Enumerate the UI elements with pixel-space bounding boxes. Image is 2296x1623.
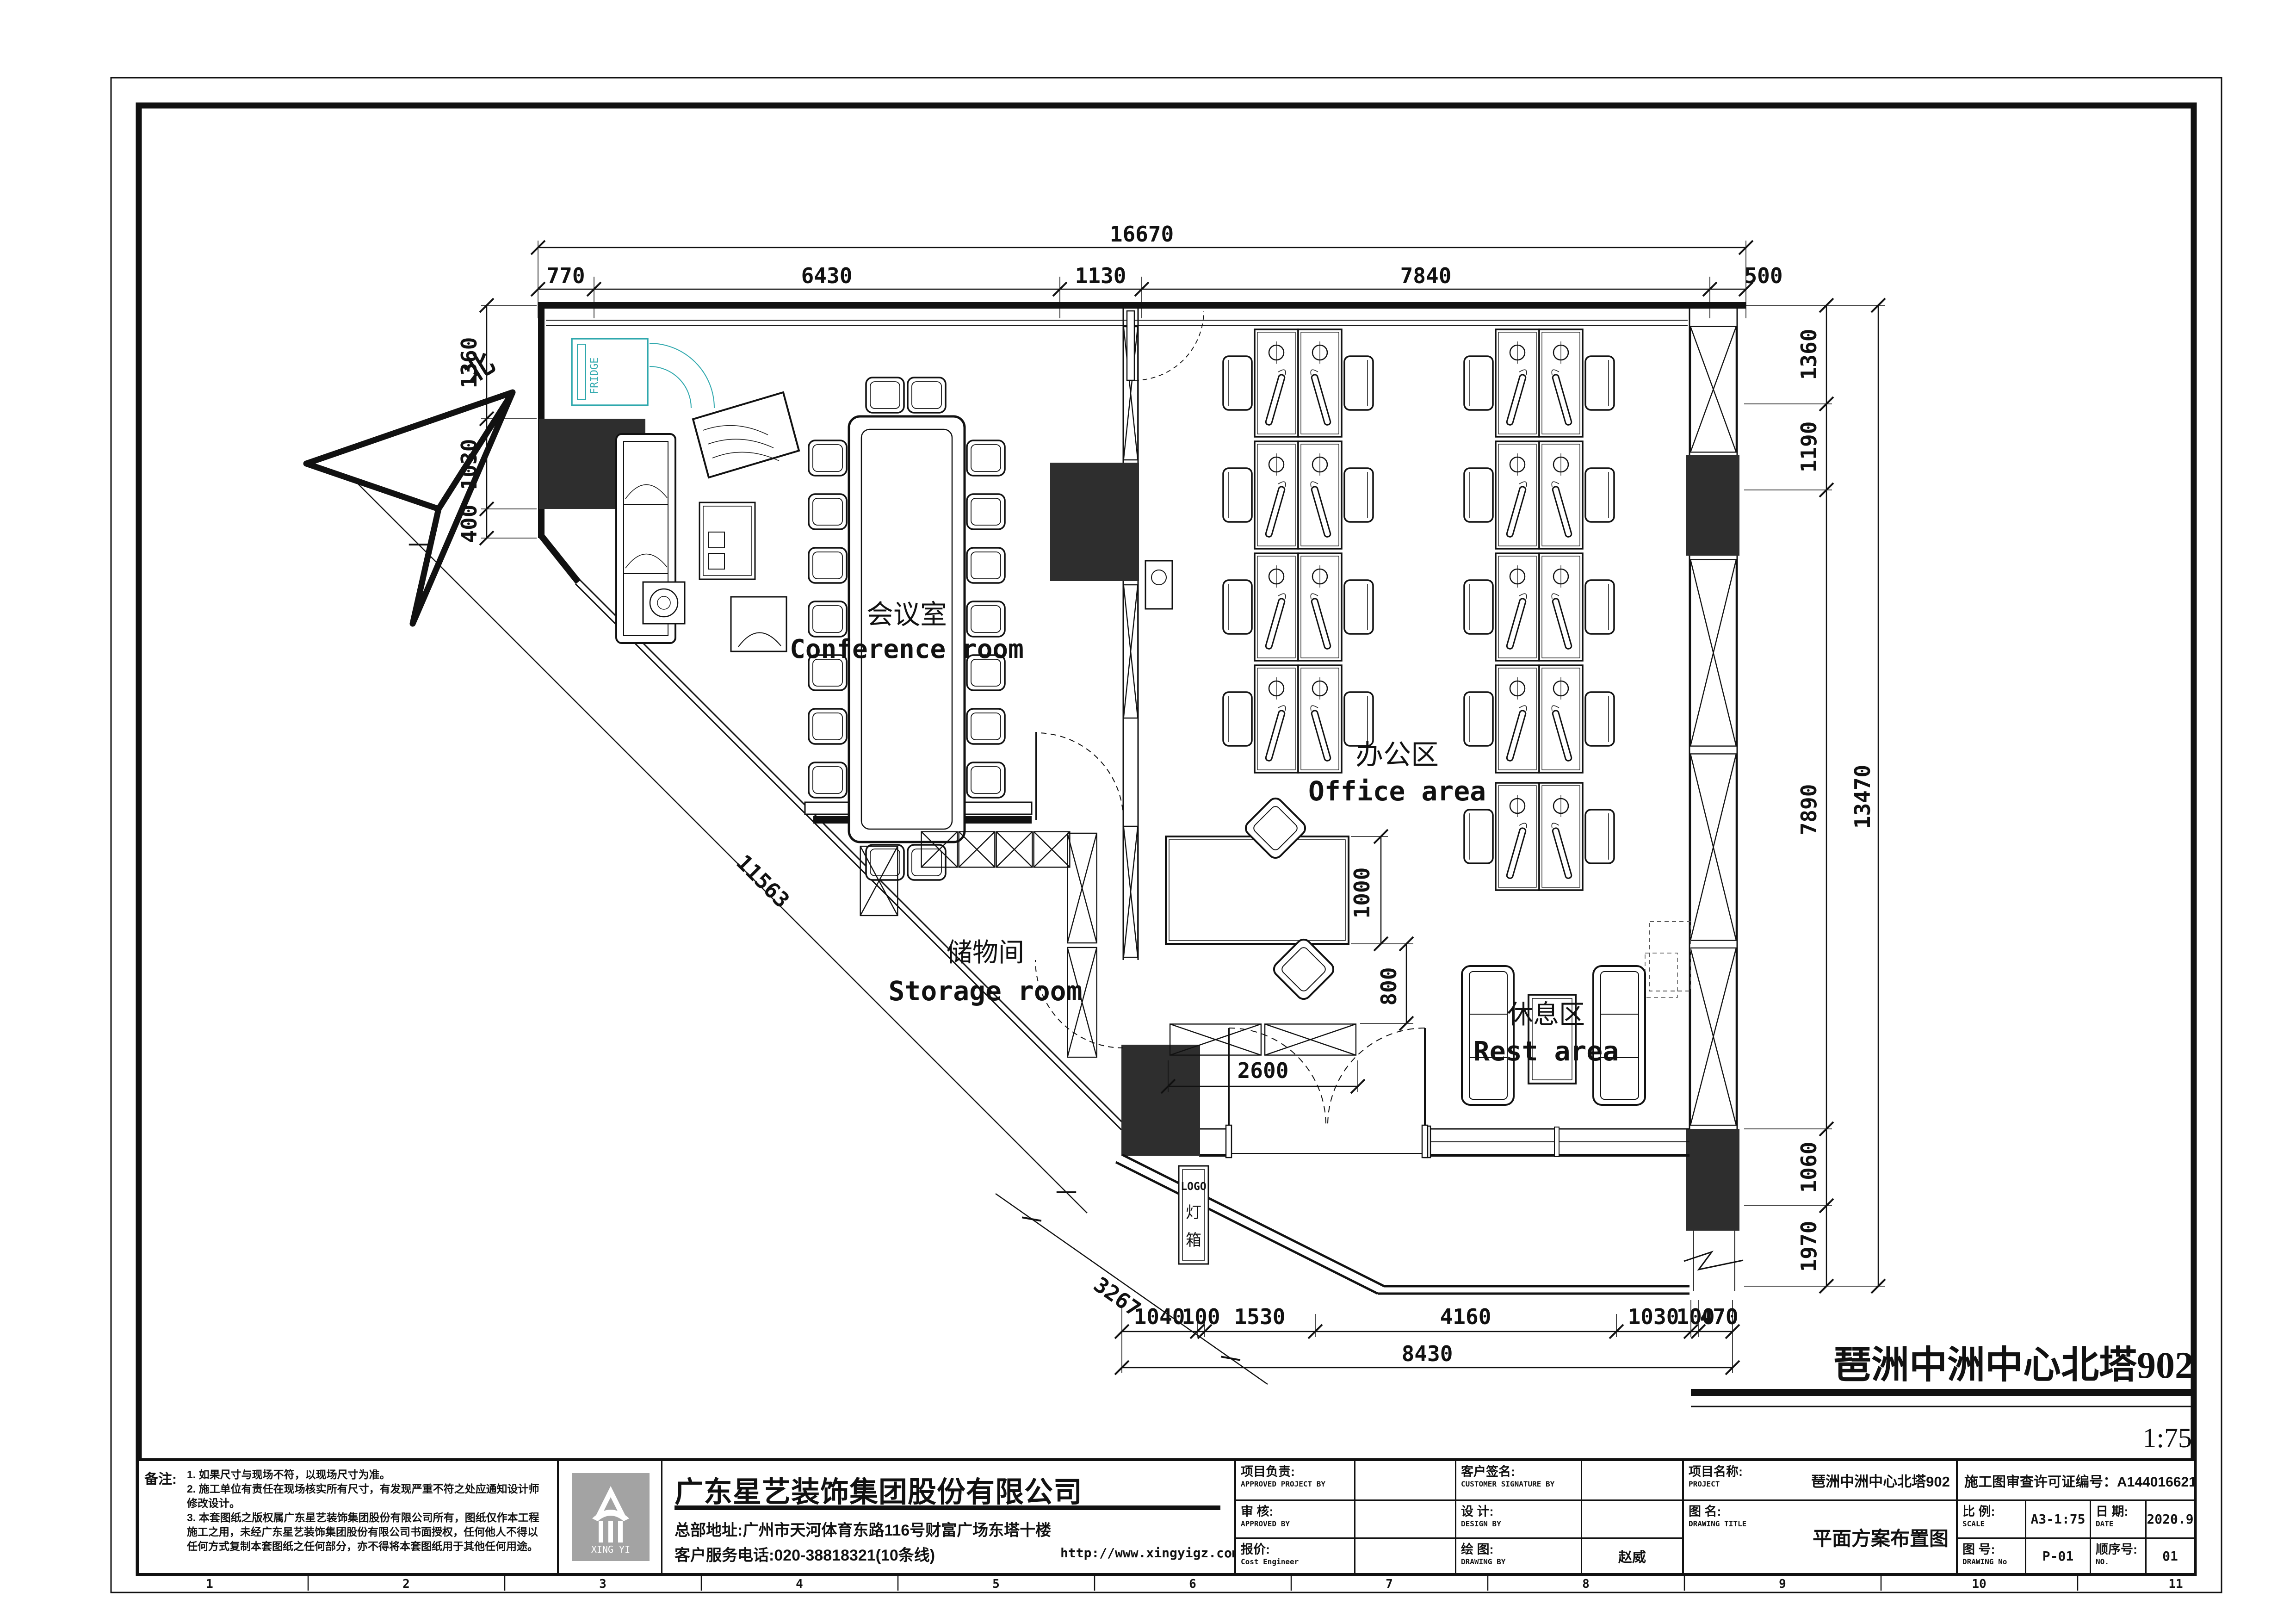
svg-text:800: 800 [1376, 967, 1401, 1005]
drawing-sheet: 12 34 56 78 910 11 北 [0, 0, 2296, 1623]
svg-text:1030: 1030 [457, 439, 482, 490]
company-address: 总部地址:广州市天河体育东路116号财富广场东塔十楼 [675, 1518, 1051, 1540]
svg-text:2: 2 [402, 1577, 410, 1591]
svg-text:1000: 1000 [1349, 867, 1374, 919]
field-customer-sign: 客户签名:CUSTOMER SIGNATURE BY [1456, 1461, 1582, 1501]
svg-text:1360: 1360 [1796, 329, 1821, 380]
svg-text:8: 8 [1582, 1577, 1590, 1591]
svg-text:1190: 1190 [1796, 421, 1821, 473]
svg-text:11: 11 [2168, 1577, 2183, 1591]
note-line: 1. 如果尺寸与现场不符，以现场尺寸为准。 [187, 1468, 553, 1482]
sheet-scale-text: 1:75 [2142, 1423, 2192, 1453]
note-line: 施工之用，未经广东星艺装饰集团股份有限公司书面授权，任何他人不得以 [187, 1525, 553, 1539]
column [1686, 1129, 1739, 1231]
svg-text:4: 4 [796, 1577, 803, 1591]
room-label: Storage room [888, 975, 1082, 1007]
field-cost: 报价:Cost Engineer [1236, 1539, 1355, 1573]
logo-cell: XING YI [559, 1461, 662, 1573]
field-seq-no: 顺序号:NO. [2091, 1539, 2147, 1573]
logo-lightbox: LOGO 灯 箱 [1179, 1166, 1208, 1264]
field-customer-sign-value [1582, 1461, 1684, 1501]
room-label: 会议室 [866, 600, 947, 630]
field-drawing-title-value: 平面方案布置图 [1805, 1501, 1958, 1573]
svg-text:100: 100 [1182, 1304, 1220, 1329]
svg-text:1530: 1530 [1234, 1304, 1286, 1329]
svg-text:7: 7 [1386, 1577, 1393, 1591]
water-dispenser [1145, 561, 1172, 609]
notes-cell: 备注: 1. 如果尺寸与现场不符，以现场尺寸为准。 2. 施工单位有责任在现场核… [139, 1461, 559, 1573]
field-project: 项目名称:PROJECT [1684, 1461, 1805, 1501]
field-approved-project-value [1355, 1461, 1456, 1501]
svg-text:770: 770 [546, 263, 585, 288]
floor-plan-canvas: 12 34 56 78 910 11 北 [0, 0, 2296, 1623]
room-label: 储物间 [947, 938, 1024, 967]
room-label: Rest area [1473, 1035, 1619, 1067]
dimension-texts: 16670 770 6430 1130 7840 500 1360 1030 4… [457, 222, 1875, 1366]
company-cell: 广东星艺装饰集团股份有限公司 总部地址:广州市天河体育东路116号财富广场东塔十… [662, 1461, 1236, 1573]
door-swing [1036, 733, 1123, 820]
svg-text:7890: 7890 [1796, 784, 1821, 836]
sheet-title-text: 琶洲中洲中心北塔902 [1833, 1344, 2194, 1386]
field-approved-project: 项目负责:APPROVED PROJECT BY [1236, 1461, 1355, 1501]
room-label: 办公区 [1355, 739, 1439, 770]
plant-table [643, 582, 685, 624]
field-date-value: 2020.9 [2147, 1501, 2194, 1539]
svg-text:灯: 灯 [1186, 1204, 1201, 1221]
svg-text:9: 9 [1779, 1577, 1786, 1591]
svg-text:1: 1 [206, 1577, 213, 1591]
reception-desk [1166, 836, 1349, 944]
svg-text:8430: 8430 [1402, 1341, 1453, 1366]
room-label: 休息区 [1507, 1000, 1585, 1029]
field-design-by-value [1582, 1501, 1684, 1539]
company-website: http://www.xingyigz.com.cn [1060, 1545, 1236, 1561]
printer-dashed [1645, 922, 1690, 997]
column [1050, 463, 1139, 581]
fridge-label: FRIDGE [589, 358, 600, 394]
side-table [699, 502, 755, 579]
sheet-title: 琶洲中洲中心北塔902 1:75 [1691, 1344, 2195, 1453]
logo-text: XING YI [591, 1544, 630, 1555]
company-phone: 客户服务电话:020-38818321(10条线) [675, 1542, 935, 1565]
column [1121, 1045, 1200, 1156]
svg-text:LOGO: LOGO [1181, 1181, 1206, 1193]
svg-text:10: 10 [1972, 1577, 1986, 1591]
north-arrow-icon: 北 [306, 347, 513, 624]
dimensions [356, 241, 1885, 1384]
svg-text:470: 470 [1700, 1304, 1738, 1329]
title-block: 备注: 1. 如果尺寸与现场不符，以现场尺寸为准。 2. 施工单位有责任在现场核… [139, 1458, 2194, 1573]
svg-text:1060: 1060 [1796, 1142, 1821, 1193]
notes-label: 备注: [144, 1468, 177, 1488]
armchair [731, 597, 786, 651]
field-scale: 比 例:SCALE [1958, 1501, 2026, 1539]
room-label: Office area [1308, 775, 1486, 807]
svg-text:5: 5 [992, 1577, 1000, 1591]
note-line: 3. 本套图纸之版权属广东星艺装饰集团股份有限公司所有，图纸仅作本工程 [187, 1511, 553, 1525]
field-seq-no-value: 01 [2147, 1539, 2194, 1573]
svg-text:6430: 6430 [801, 263, 853, 288]
field-design-by: 设 计:DESIGN BY [1456, 1501, 1582, 1539]
margin-ruler-numbers: 12 34 56 78 910 11 [206, 1577, 2183, 1591]
svg-text:1030: 1030 [1628, 1304, 1679, 1329]
field-drawing-no-value: P-01 [2026, 1539, 2091, 1573]
svg-text:16670: 16670 [1110, 222, 1174, 247]
reception [1166, 795, 1356, 1055]
company-logo: XING YI [572, 1473, 650, 1561]
rest-area: 休息区 Rest area [1462, 966, 1645, 1105]
svg-text:6: 6 [1189, 1577, 1196, 1591]
field-drawing-by-value: 赵威 [1582, 1539, 1684, 1573]
field-approved-by-value [1355, 1501, 1456, 1539]
svg-text:11563: 11563 [731, 850, 794, 913]
field-drawing-by: 绘 图:DRAWING BY [1456, 1539, 1582, 1573]
svg-text:箱: 箱 [1186, 1232, 1201, 1249]
svg-text:3: 3 [599, 1577, 606, 1591]
field-date: 日 期:DATE [2091, 1501, 2147, 1539]
company-name: 广东星艺装饰集团股份有限公司 [675, 1468, 1224, 1510]
field-drawing-title: 图 名:DRAWING TITLE [1684, 1501, 1805, 1573]
field-project-value: 琶洲中洲中心北塔902 [1805, 1461, 1958, 1501]
field-permit: 施工图审查许可证编号：A144016621(甲级) [1958, 1461, 2194, 1501]
room-label: Conference room [790, 634, 1024, 664]
svg-text:500: 500 [1744, 263, 1782, 288]
field-scale-value: A3-1:75 [2026, 1501, 2091, 1539]
svg-text:13470: 13470 [1850, 765, 1875, 829]
svg-text:1360: 1360 [457, 337, 482, 389]
column [1686, 455, 1739, 556]
door-swing [1134, 311, 1204, 380]
note-line: 任何方式复制本套图纸之任何部分，亦不得将本套图纸用于其他任何用途。 [187, 1539, 553, 1554]
rug [693, 392, 799, 477]
door-swing [1328, 1028, 1425, 1125]
svg-text:2600: 2600 [1238, 1058, 1289, 1083]
svg-text:400: 400 [457, 504, 482, 543]
svg-text:7840: 7840 [1400, 263, 1452, 288]
fridge: FRIDGE [572, 339, 714, 408]
note-line: 修改设计。 [187, 1496, 553, 1511]
svg-text:1970: 1970 [1796, 1221, 1821, 1272]
field-drawing-no: 图 号:DRAWING No [1958, 1539, 2026, 1573]
field-approved-by: 审 核:APPROVED BY [1236, 1501, 1355, 1539]
note-line: 2. 施工单位有责任在现场核实所有尺寸，有发现严重不符之处应通知设计师 [187, 1482, 553, 1496]
svg-text:1040: 1040 [1134, 1304, 1185, 1329]
svg-text:4160: 4160 [1440, 1304, 1491, 1329]
svg-text:1130: 1130 [1075, 263, 1126, 288]
field-cost-value [1355, 1539, 1456, 1573]
